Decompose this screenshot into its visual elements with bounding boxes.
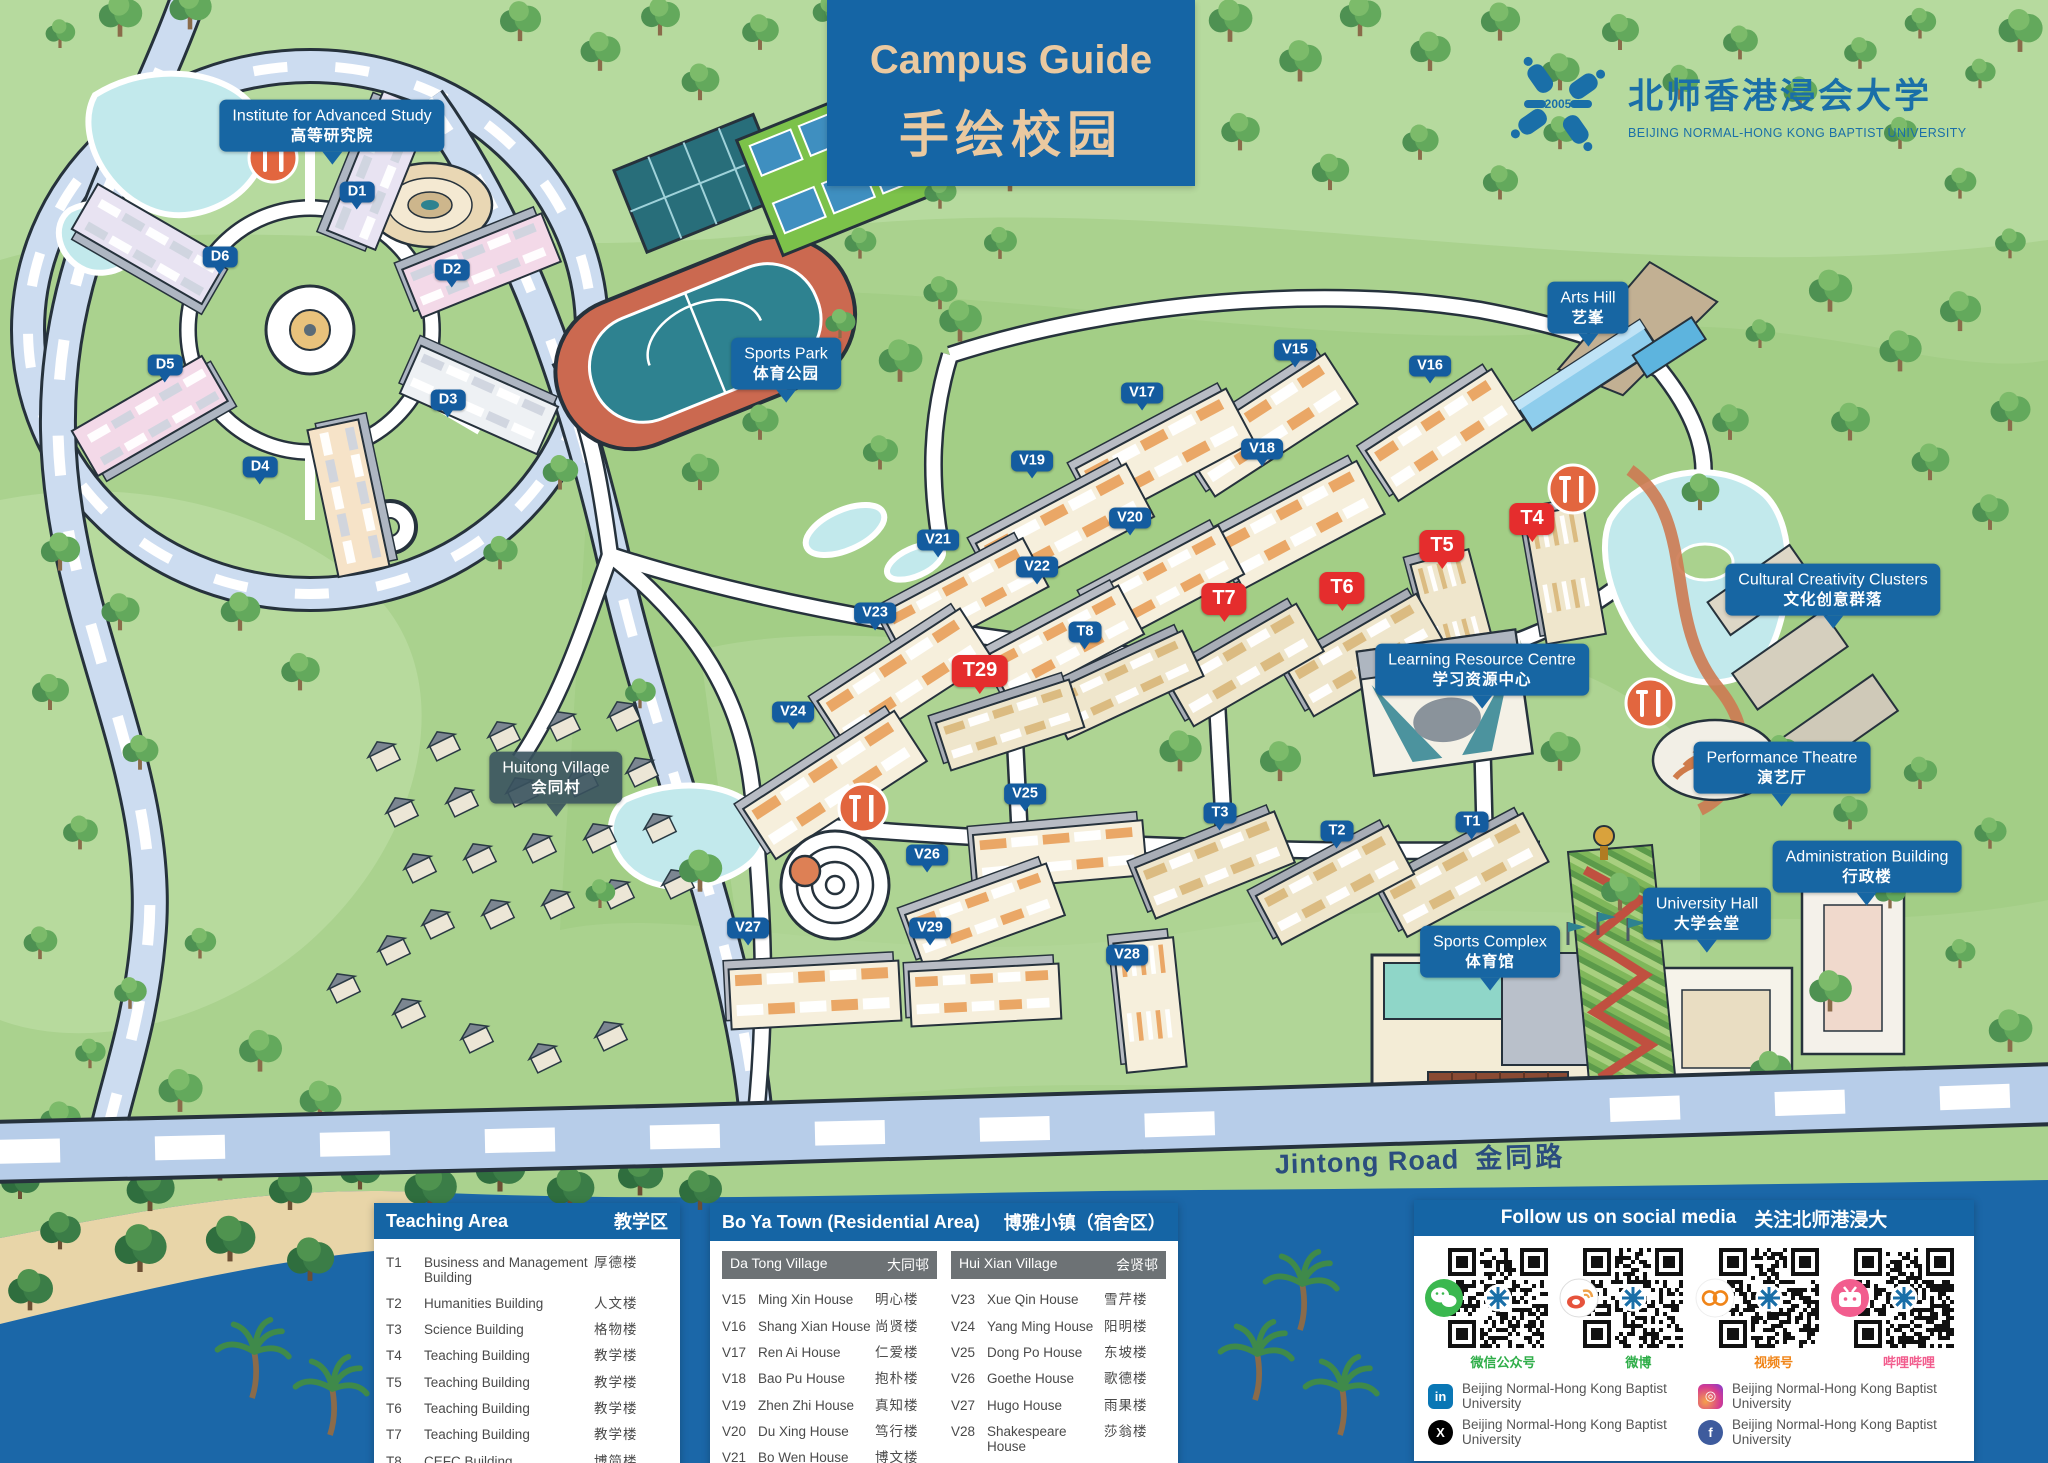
restaurant-icon <box>1626 679 1674 727</box>
social-account-name: Beijing Normal-Hong Kong Baptist Univers… <box>1462 1381 1690 1411</box>
teaching-legend-row: T1Business and Management Building厚德楼 <box>386 1248 668 1288</box>
qr-label: 微信公众号 <box>1448 1352 1558 1371</box>
teaching-legend-row: T4Teaching Building教学楼 <box>386 1341 668 1367</box>
social-account-name: Beijing Normal-Hong Kong Baptist Univers… <box>1732 1381 1960 1411</box>
building <box>903 955 1061 1027</box>
teaching-legend-row: T5Teaching Building教学楼 <box>386 1368 668 1394</box>
university-logo: 2005 北师香港浸会大学 BEIJING NORMAL-HONG KONG B… <box>1502 48 1967 160</box>
residence-legend-row: V18Bao Pu House抱朴楼 <box>722 1364 937 1390</box>
wechat-icon <box>1424 1278 1464 1318</box>
residence-legend-row: V19Zhen Zhi House真知楼 <box>722 1391 937 1417</box>
weibo-icon <box>1559 1278 1599 1318</box>
residence-legend-row: V29Yung Wing House容闳楼 <box>951 1457 1166 1463</box>
boya-legend-title: Bo Ya Town (Residential Area) <box>722 1212 980 1233</box>
restaurant-icon <box>839 784 887 832</box>
teaching-legend-row: T2Humanities Building人文楼 <box>386 1288 668 1314</box>
title-banner: Campus Guide 手绘校园 <box>827 0 1195 186</box>
qr-label: 哔哩哔哩 <box>1854 1352 1964 1371</box>
restaurant-icon <box>1549 465 1597 513</box>
spiral-plaza <box>781 831 889 939</box>
campus-map: Institute for Advanced Study高等研究院Sports … <box>0 0 2048 1463</box>
residence-legend-row: V15Ming Xin House明心楼 <box>722 1285 937 1311</box>
teaching-legend-title: Teaching Area <box>386 1211 508 1232</box>
linkedin-icon: in <box>1428 1384 1453 1409</box>
social-title-zh: 关注北师港浸大 <box>1754 1205 1887 1232</box>
instagram-icon: ◎ <box>1698 1384 1723 1409</box>
building <box>723 952 901 1030</box>
qr-unit-weibo: 微博 <box>1565 1248 1693 1371</box>
social-title: Follow us on social media <box>1501 1207 1736 1229</box>
university-logo-icon: 2005 <box>1502 48 1614 160</box>
residence-legend-row: V25Dong Po House东坡楼 <box>951 1338 1166 1364</box>
teaching-legend-row: T7Teaching Building教学楼 <box>386 1420 668 1446</box>
lrc-building <box>1357 629 1533 775</box>
teaching-legend-row: T8CEFC Building博简楼 <box>386 1447 668 1463</box>
university-name-zh: 北师香港浸会大学 <box>1628 68 1967 119</box>
logo-year: 2005 <box>1545 97 1572 111</box>
wechat-channels-icon <box>1695 1278 1735 1318</box>
residence-legend-row: V24Yang Ming House阳明楼 <box>951 1311 1166 1337</box>
social-account-facebook: fBeijing Normal-Hong Kong Baptist Univer… <box>1698 1417 1960 1447</box>
residence-legend-row: V28Shakespeare House莎翁楼 <box>951 1417 1166 1457</box>
social-media-panel: Follow us on social media 关注北师港浸大 微信公众号微… <box>1414 1200 1974 1461</box>
qr-unit-wechat: 微信公众号 <box>1430 1248 1558 1371</box>
qr-unit-bilibili: 哔哩哔哩 <box>1836 1248 1964 1371</box>
residence-legend-row: V17Ren Ai House仁爱楼 <box>722 1338 937 1364</box>
boya-town-legend: Bo Ya Town (Residential Area) 博雅小镇（宿舍区） … <box>710 1203 1178 1463</box>
qr-label: 视频号 <box>1719 1352 1829 1371</box>
social-account-name: Beijing Normal-Hong Kong Baptist Univers… <box>1732 1417 1960 1447</box>
bilibili-icon <box>1830 1278 1870 1318</box>
social-account-x: XBeijing Normal-Hong Kong Baptist Univer… <box>1428 1417 1690 1447</box>
building <box>1107 928 1186 1073</box>
boya-legend-title-zh: 博雅小镇（宿舍区） <box>1004 1209 1166 1235</box>
social-account-name: Beijing Normal-Hong Kong Baptist Univers… <box>1462 1417 1690 1447</box>
teaching-legend-title-zh: 教学区 <box>614 1208 668 1234</box>
page-title: Campus Guide <box>827 38 1195 83</box>
page-title-zh: 手绘校园 <box>827 95 1195 167</box>
university-name-en: BEIJING NORMAL-HONG KONG BAPTIST UNIVERS… <box>1628 126 1967 140</box>
teaching-area-legend: Teaching Area 教学区 T1Business and Managem… <box>374 1203 680 1463</box>
teaching-legend-row: T6Teaching Building教学楼 <box>386 1394 668 1420</box>
restaurant-icon <box>249 134 297 182</box>
x-icon: X <box>1428 1420 1453 1445</box>
residence-legend-row: V23Xue Qin House雪芹楼 <box>951 1285 1166 1311</box>
residence-legend-row: V16Shang Xian House尚贤楼 <box>722 1311 937 1337</box>
qr-unit-wechat-channels: 视频号 <box>1701 1248 1829 1371</box>
residence-legend-row: V27Hugo House雨果楼 <box>951 1391 1166 1417</box>
social-account-linkedin: inBeijing Normal-Hong Kong Baptist Unive… <box>1428 1381 1690 1411</box>
residence-legend-row: V26Goethe House歌德楼 <box>951 1364 1166 1390</box>
qr-label: 微博 <box>1583 1352 1693 1371</box>
village-column: Da Tong Village大同邨V15Ming Xin House明心楼V1… <box>722 1251 937 1463</box>
residence-legend-row: V20Du Xing House笃行楼 <box>722 1417 937 1443</box>
village-column: Hui Xian Village会贤邨V23Xue Qin House雪芹楼V2… <box>951 1251 1166 1463</box>
facebook-icon: f <box>1698 1420 1723 1445</box>
residence-legend-row: V21Bo Wen House博文楼 <box>722 1443 937 1463</box>
social-account-instagram: ◎Beijing Normal-Hong Kong Baptist Univer… <box>1698 1381 1960 1411</box>
road-label: Jintong Road金同路 <box>1274 1134 1565 1181</box>
performance-theatre-building <box>1653 720 1777 800</box>
teaching-legend-row: T3Science Building格物楼 <box>386 1315 668 1341</box>
